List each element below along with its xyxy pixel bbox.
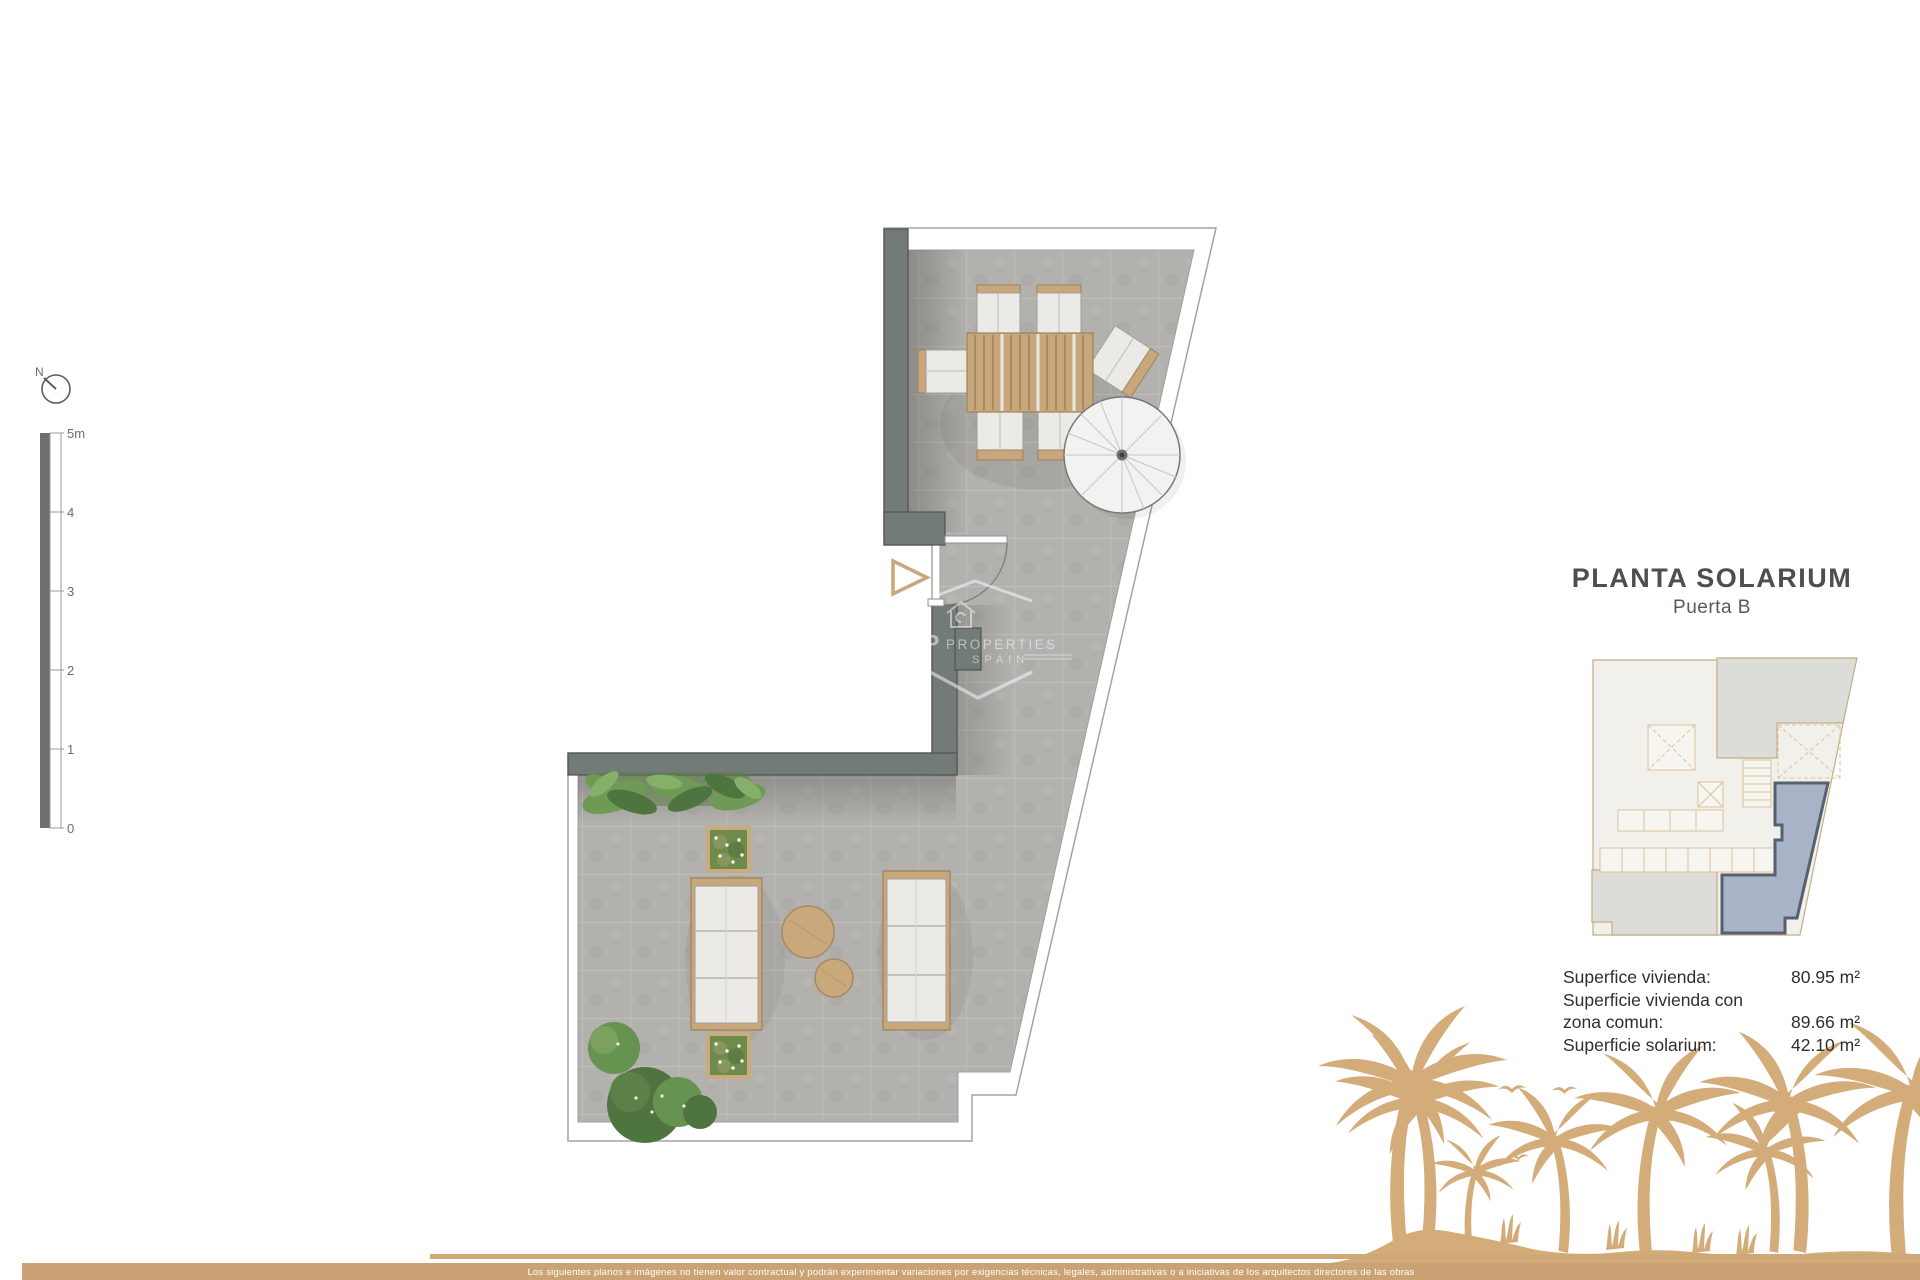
sun-lounger xyxy=(883,871,950,1030)
area-label: Superficie solarium: xyxy=(1563,1034,1791,1057)
area-label: Superficie vivienda con xyxy=(1563,989,1791,1012)
scale-tick-label: 2 xyxy=(67,663,74,678)
watermark-name: PROPERTIES xyxy=(946,637,1058,652)
floor-plan-page: { "compass": { "north_label": "N" }, "sc… xyxy=(0,0,1920,1280)
bird-icon xyxy=(1552,1087,1577,1094)
area-label: zona comun: xyxy=(1563,1011,1791,1034)
north-label: N xyxy=(35,365,44,379)
dining-chair xyxy=(977,285,1020,333)
disclaimer-bar: Los siguientes planos e imágenes no tien… xyxy=(22,1263,1920,1280)
area-label: Superfice vivienda: xyxy=(1563,966,1791,989)
area-row: Superfice vivienda: 80.95 m² xyxy=(1563,966,1875,989)
entry-arrow-icon xyxy=(893,561,927,594)
surface-areas: Superfice vivienda: 80.95 m² Superficie … xyxy=(1563,966,1875,1056)
page-subtitle: Puerta B xyxy=(1492,597,1920,619)
dining-chair xyxy=(918,350,967,393)
watermark-monogram: P xyxy=(924,630,939,656)
dining-chair xyxy=(1037,285,1081,333)
wall-upper-left xyxy=(884,229,908,531)
scale-tick-label: 5m xyxy=(67,426,85,441)
sun-lounger xyxy=(691,878,762,1030)
scale-tick-label: 3 xyxy=(67,584,74,599)
area-row: Superficie vivienda con xyxy=(1563,989,1875,1012)
scale-tick-label: 1 xyxy=(67,742,74,757)
building-locator-plan xyxy=(1592,658,1857,935)
watermark-country: SPAIN xyxy=(972,654,1029,666)
locator-skylight xyxy=(1648,725,1695,770)
area-row: zona comun: 89.66 m² xyxy=(1563,1011,1875,1034)
wall-lower-terrace xyxy=(568,753,957,775)
dining-table xyxy=(967,333,1093,412)
door-jamb xyxy=(928,599,944,606)
compass-icon: N xyxy=(35,365,70,403)
area-value: 42.10 m² xyxy=(1791,1034,1875,1057)
disclaimer-text: Los siguientes planos e imágenes no tien… xyxy=(527,1267,1414,1278)
sand-strip xyxy=(430,1254,1920,1259)
flower-planter xyxy=(708,828,749,871)
door-leaf xyxy=(945,536,1007,543)
north-needle xyxy=(44,378,56,389)
area-row: Superficie solarium: 42.10 m² xyxy=(1563,1034,1875,1057)
scale-tick-label: 4 xyxy=(67,505,74,520)
scale-bar: 5m 4 3 2 1 0 xyxy=(40,426,85,836)
area-value: 80.95 m² xyxy=(1791,966,1875,989)
flower-planter xyxy=(708,1034,749,1077)
solarium-floor-plan: N 5m 4 3 2 1 0 xyxy=(0,0,1920,1280)
scale-tick-label: 0 xyxy=(67,821,74,836)
area-value xyxy=(1791,989,1875,1012)
dining-chair xyxy=(977,412,1023,460)
page-title: PLANTA SOLARIUM xyxy=(1492,563,1920,594)
area-value: 89.66 m² xyxy=(1791,1011,1875,1034)
wall-step xyxy=(884,512,945,545)
